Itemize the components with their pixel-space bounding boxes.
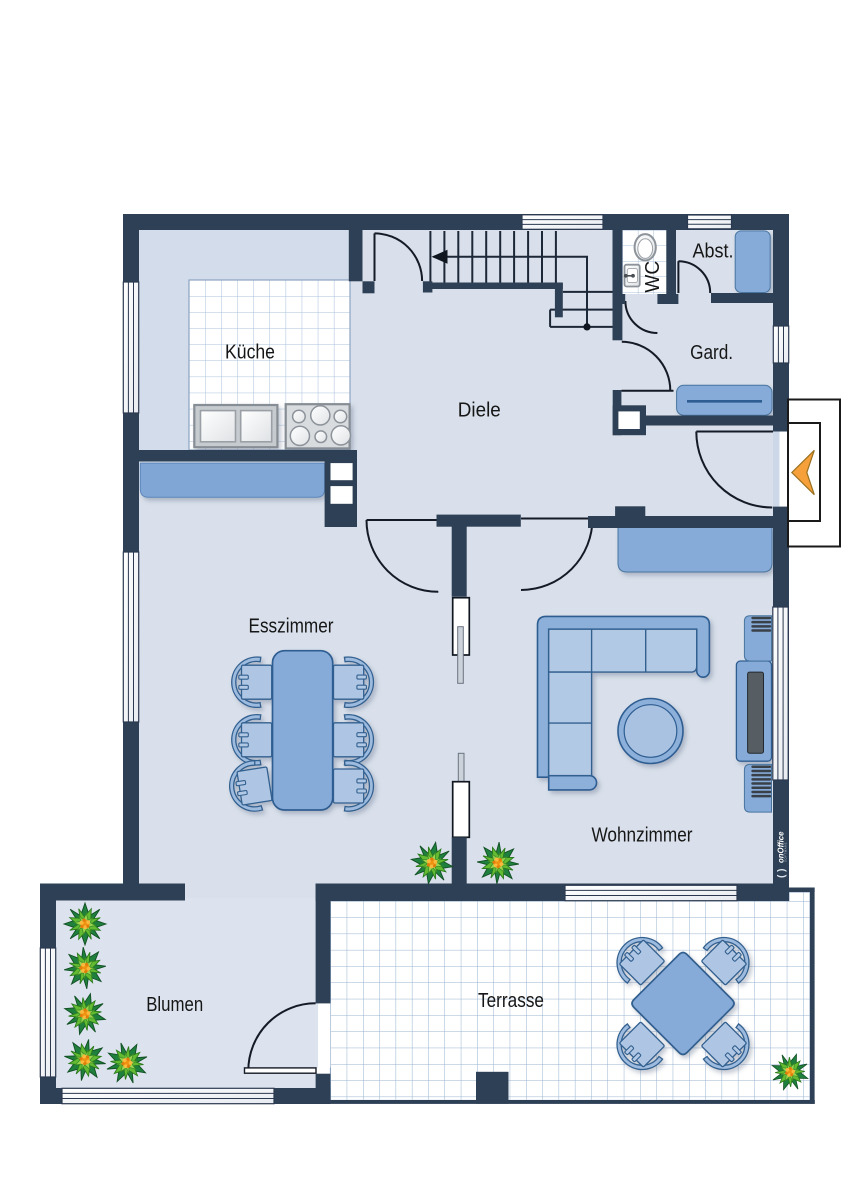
svg-text:( ): ( ) [777,869,788,878]
svg-text:Blumen: Blumen [146,994,203,1016]
svg-text:Esszimmer: Esszimmer [249,616,334,638]
svg-text:Terrasse: Terrasse [478,990,544,1012]
svg-text:WC: WC [642,261,664,293]
svg-text:Abst.: Abst. [693,241,734,263]
svg-text:S O F T W A R E: S O F T W A R E [784,842,788,862]
svg-text:Küche: Küche [225,342,275,364]
svg-text:Diele: Diele [458,400,501,422]
svg-text:Gard.: Gard. [690,342,733,364]
svg-text:Wohnzimmer: Wohnzimmer [592,825,693,847]
